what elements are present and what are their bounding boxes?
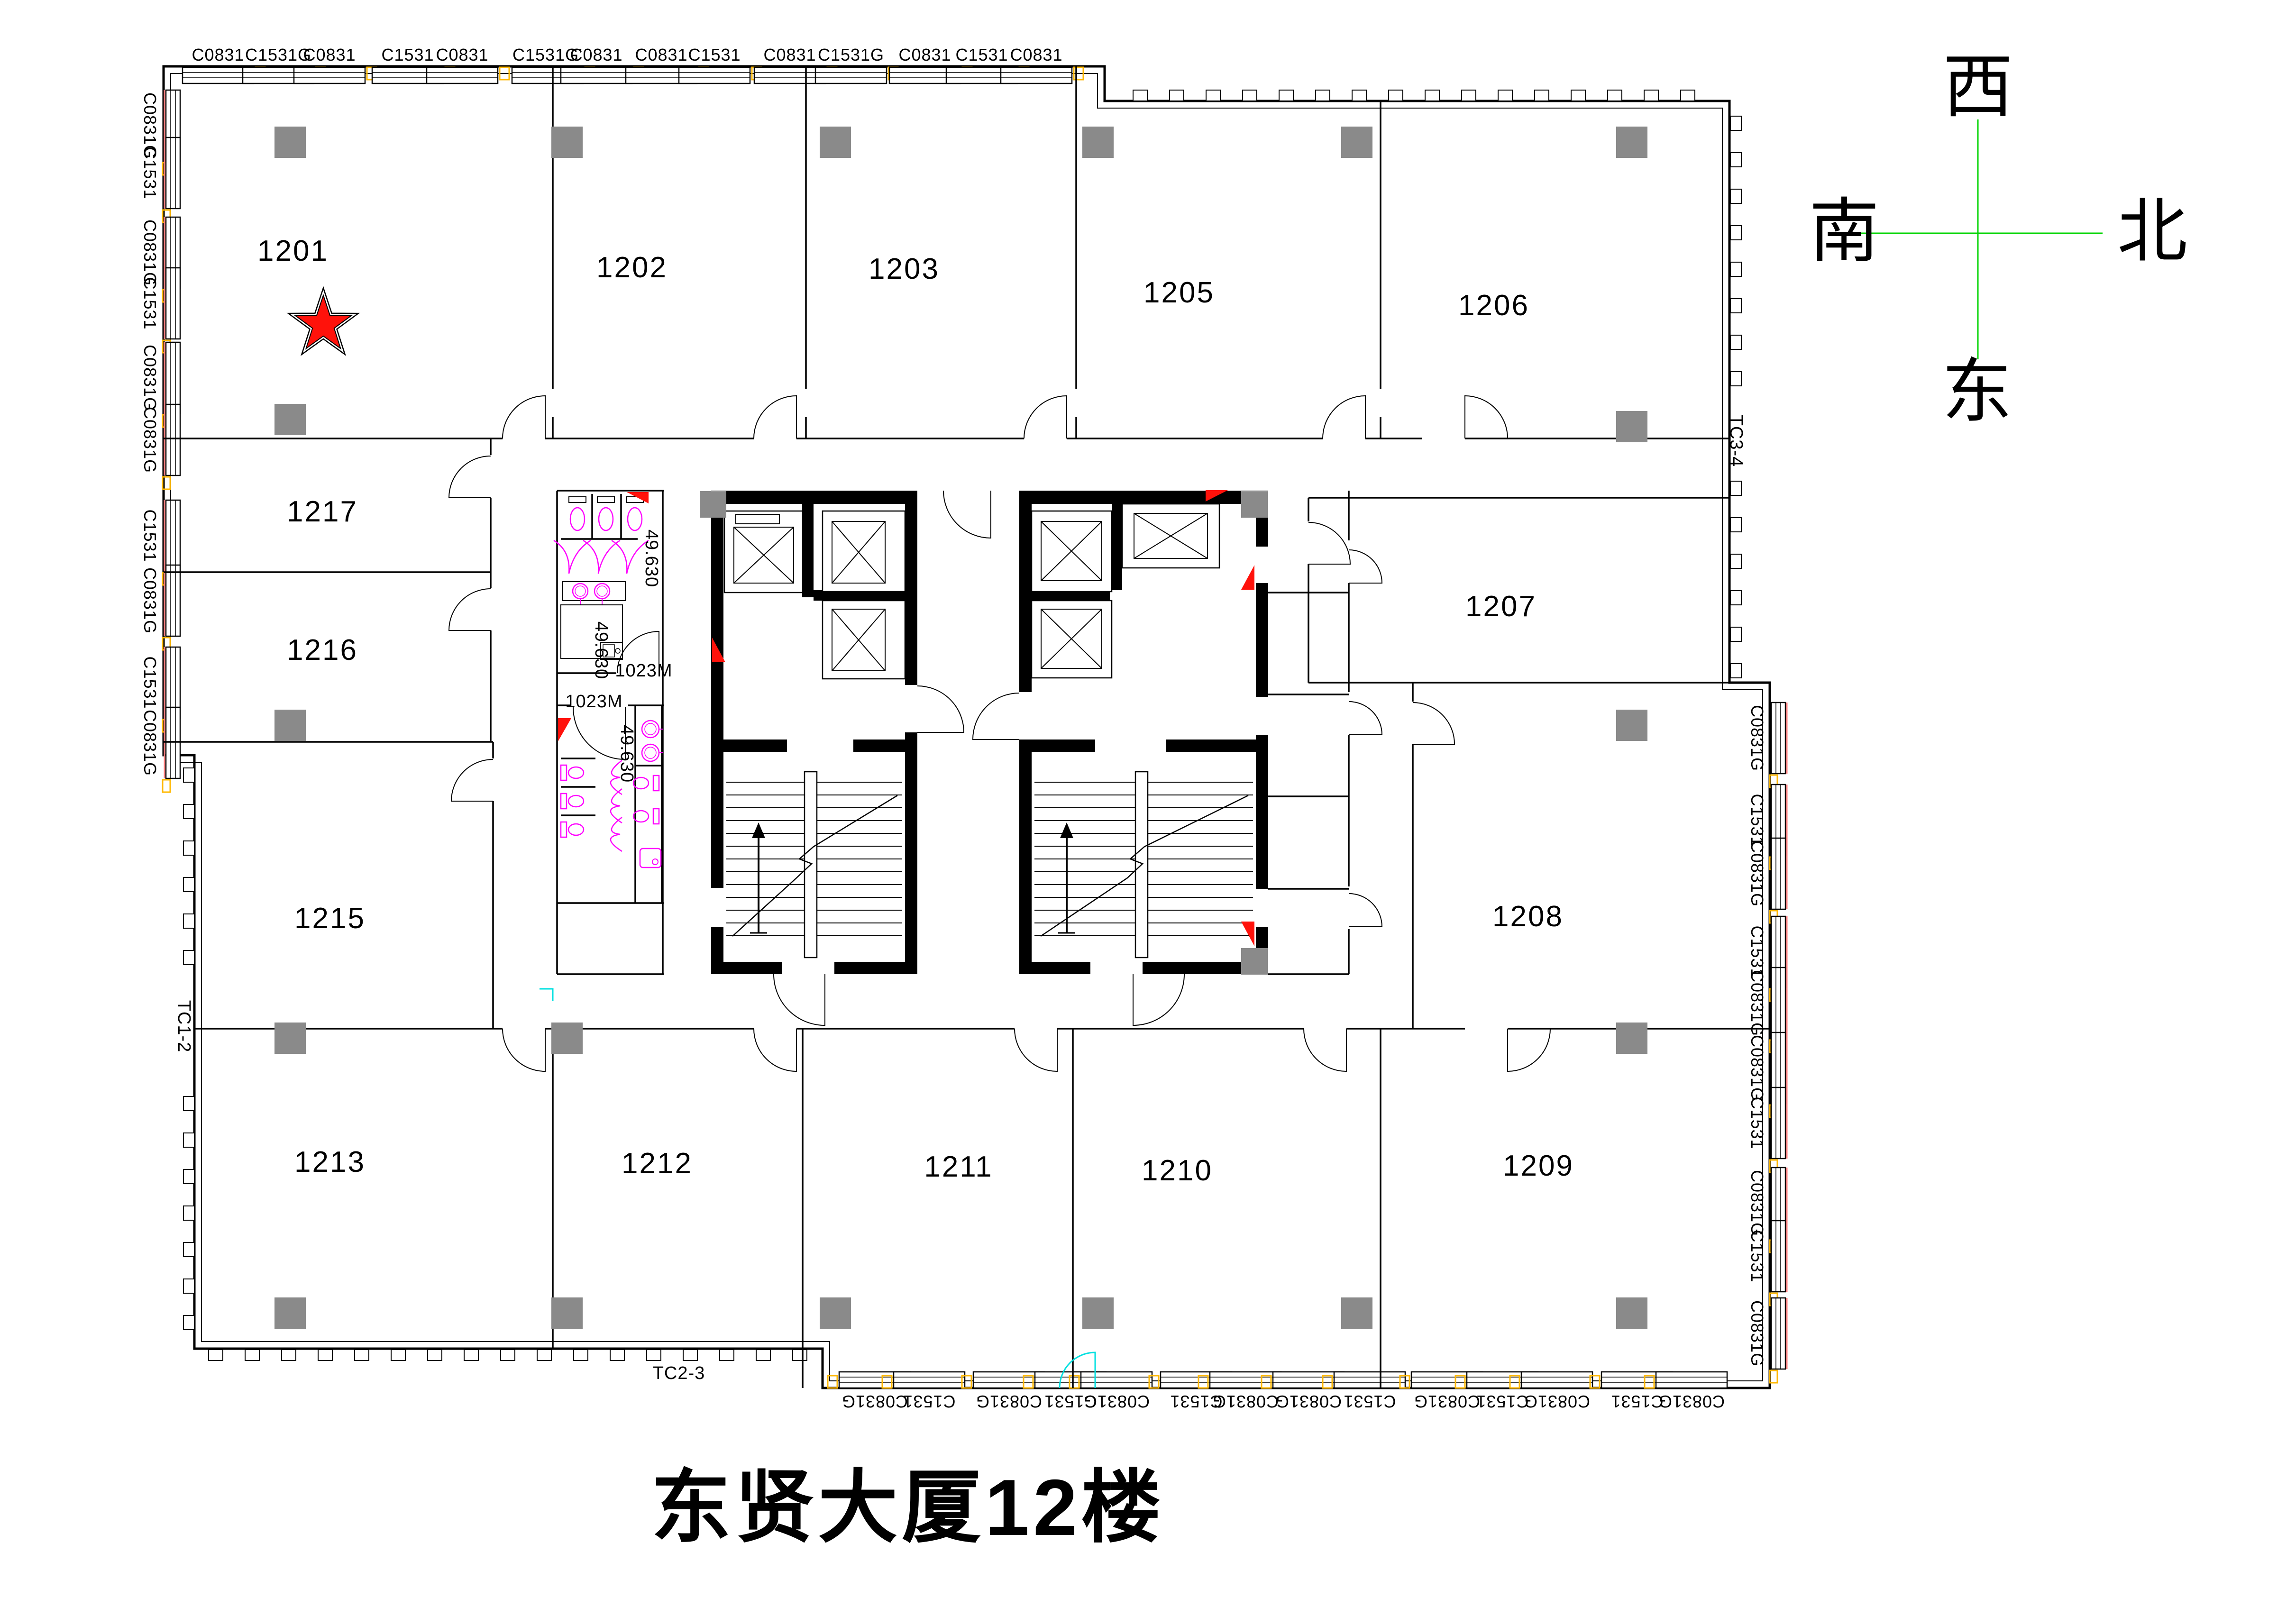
window-icon-bottom bbox=[1323, 1372, 1405, 1388]
window-label-top-4: C0831 bbox=[436, 46, 488, 64]
stair-icon bbox=[726, 772, 902, 958]
structural-columns bbox=[274, 127, 1647, 1329]
column-icon bbox=[820, 1297, 851, 1329]
column-icon bbox=[274, 710, 306, 741]
column-icon bbox=[551, 127, 583, 158]
elevator-icon bbox=[1122, 504, 1219, 568]
room-label-1212: 1212 bbox=[622, 1149, 693, 1178]
column-icon bbox=[1082, 127, 1114, 158]
tc-zone-label-2: TC3-4 bbox=[1727, 415, 1745, 467]
door-swing-icon bbox=[754, 1029, 796, 1071]
column-icon bbox=[1616, 411, 1647, 442]
door-swing-icon bbox=[1323, 396, 1365, 438]
compass-west-label: 西 bbox=[1943, 53, 2013, 123]
window-icon-left bbox=[163, 565, 180, 650]
door-swing-icon bbox=[503, 396, 545, 438]
window-label-bottom-12: C1531 bbox=[1610, 1393, 1663, 1410]
window-icon-right bbox=[1770, 1087, 1787, 1172]
column-icon bbox=[700, 491, 726, 518]
window-label-top-2: C0831 bbox=[303, 46, 356, 64]
tc-zone-label-1: TC2-3 bbox=[653, 1364, 705, 1382]
window-label-left-4: C0831G bbox=[141, 345, 158, 411]
window-label-bottom-0: C0831G bbox=[842, 1393, 908, 1410]
room-label-1205: 1205 bbox=[1143, 278, 1215, 308]
hydrant-icon bbox=[1241, 922, 1254, 946]
column-icon bbox=[820, 127, 851, 158]
window-label-right-6: C1531 bbox=[1748, 1096, 1765, 1149]
window-label-bottom-2: C0831G bbox=[976, 1393, 1042, 1410]
level-annotation-1: 49.630 bbox=[592, 621, 610, 679]
door-swing-icon bbox=[1349, 894, 1382, 927]
room-label-1215: 1215 bbox=[294, 904, 366, 933]
window-label-left-9: C0831G bbox=[141, 710, 158, 776]
door-swing-icon bbox=[1413, 703, 1454, 744]
column-icon bbox=[551, 1297, 583, 1329]
window-label-left-2: C0831G bbox=[141, 219, 158, 286]
room-label-1217: 1217 bbox=[287, 497, 358, 527]
floor-outline bbox=[164, 66, 1770, 1388]
window-icon-right bbox=[1770, 1298, 1787, 1383]
room-label-1208: 1208 bbox=[1492, 902, 1564, 931]
room-label-1202: 1202 bbox=[596, 253, 668, 283]
compass-north-label: 北 bbox=[2117, 197, 2187, 267]
door-swing-icon bbox=[1465, 396, 1508, 438]
red-star-marker bbox=[288, 288, 358, 355]
door-swing-icon bbox=[973, 693, 1019, 740]
window-icon-left bbox=[163, 137, 180, 222]
door-swing-icon bbox=[774, 974, 825, 1025]
window-label-right-4: C0831G bbox=[1748, 970, 1765, 1036]
compass-south-label: 南 bbox=[1809, 197, 1879, 267]
column-icon bbox=[1616, 1023, 1647, 1054]
drawing-title: 东贤大厦12楼 bbox=[651, 1468, 1165, 1547]
window-icon-bottom bbox=[1510, 1372, 1592, 1388]
window-icon-bottom bbox=[1645, 1372, 1727, 1388]
window-label-top-0: C0831 bbox=[192, 46, 244, 64]
elevator-icon bbox=[1032, 601, 1112, 678]
door-swing-icon bbox=[449, 456, 491, 498]
window-label-right-7: C0831G bbox=[1748, 1170, 1765, 1236]
window-label-top-8: C1531 bbox=[688, 46, 741, 64]
hydrant-icon bbox=[558, 718, 571, 741]
hydrant-icon bbox=[1241, 565, 1254, 590]
window-label-bottom-6: C0831G bbox=[1212, 1393, 1279, 1410]
room-label-1201: 1201 bbox=[257, 237, 329, 266]
window-label-right-8: C1531 bbox=[1748, 1230, 1765, 1282]
window-label-top-12: C1531 bbox=[955, 46, 1008, 64]
window-icon-left bbox=[163, 404, 180, 489]
window-icon-left bbox=[163, 268, 180, 353]
level-annotation-0: 49.630 bbox=[642, 530, 660, 587]
door-swing-icon bbox=[451, 759, 493, 801]
window-label-left-6: C1531 bbox=[141, 509, 158, 562]
window-icon-right bbox=[1770, 703, 1787, 787]
window-icon-right bbox=[1770, 1221, 1787, 1306]
elevator-icon bbox=[823, 601, 905, 679]
door-swing-icon bbox=[1304, 1029, 1346, 1071]
column-icon bbox=[274, 404, 306, 435]
compass-east-label: 东 bbox=[1942, 357, 2012, 428]
window-label-right-5: C0831G bbox=[1748, 1035, 1765, 1101]
room-label-1207: 1207 bbox=[1465, 592, 1537, 621]
window-label-bottom-1: C1531 bbox=[903, 1393, 955, 1410]
window-label-top-1: C1531G bbox=[245, 46, 311, 64]
room-label-1213: 1213 bbox=[294, 1148, 366, 1177]
window-label-top-7: C0831 bbox=[635, 46, 687, 64]
column-icon bbox=[1241, 948, 1268, 975]
star-icon bbox=[295, 295, 351, 348]
window-label-left-5: C0831G bbox=[141, 407, 158, 473]
level-annotation-3: 1023M bbox=[615, 662, 672, 680]
window-label-right-2: C0831G bbox=[1748, 840, 1765, 907]
window-label-right-9: C0831G bbox=[1748, 1300, 1765, 1367]
window-icon-top bbox=[679, 67, 761, 83]
room-label-1206: 1206 bbox=[1458, 291, 1529, 320]
column-icon bbox=[274, 127, 306, 158]
level-annotation-4: 1023M bbox=[565, 693, 622, 711]
window-label-bottom-10: C1531 bbox=[1476, 1393, 1528, 1410]
stairwells bbox=[726, 772, 1253, 958]
door-swing-icon bbox=[1508, 1029, 1550, 1071]
window-icon-right bbox=[1770, 838, 1787, 923]
room-label-1211: 1211 bbox=[924, 1152, 993, 1182]
window-label-top-6: C0831 bbox=[570, 46, 622, 64]
column-icon bbox=[1616, 1297, 1647, 1329]
column-icon bbox=[1082, 1297, 1114, 1329]
window-icon-top bbox=[427, 67, 509, 83]
room-label-1216: 1216 bbox=[287, 636, 358, 665]
door-swing-icon bbox=[1024, 396, 1067, 438]
window-label-bottom-13: C0831G bbox=[1658, 1393, 1725, 1410]
door-swing-icon bbox=[1308, 522, 1350, 564]
window-label-bottom-11: C0831G bbox=[1524, 1393, 1590, 1410]
window-label-top-3: C1531 bbox=[381, 46, 434, 64]
column-icon bbox=[1341, 1297, 1372, 1329]
column-icon bbox=[274, 1297, 306, 1329]
tc-zone-label-0: TC1-2 bbox=[175, 1000, 193, 1053]
door-swing-icon bbox=[1015, 1029, 1057, 1071]
window-icon-bottom bbox=[1198, 1372, 1281, 1388]
level-annotation-2: 49.630 bbox=[618, 725, 636, 783]
interior-walls bbox=[164, 66, 1770, 1388]
window-icon-top bbox=[815, 67, 898, 83]
stair-icon bbox=[1034, 772, 1253, 958]
room-label-1209: 1209 bbox=[1503, 1151, 1574, 1181]
window-label-left-8: C1531 bbox=[141, 656, 158, 709]
door-swing-icon bbox=[754, 396, 796, 438]
column-icon bbox=[1241, 491, 1268, 518]
window-label-right-1: C1531 bbox=[1748, 794, 1765, 846]
window-icon-bottom bbox=[1070, 1372, 1152, 1388]
window-label-bottom-8: C1531 bbox=[1343, 1393, 1396, 1410]
room-label-1210: 1210 bbox=[1142, 1156, 1213, 1186]
door-swing-icon bbox=[1133, 974, 1184, 1025]
door-swing-icon bbox=[1349, 702, 1382, 735]
elevator-shafts bbox=[724, 504, 1219, 679]
door-swing-icon bbox=[449, 589, 491, 630]
column-icon bbox=[1616, 127, 1647, 158]
window-label-top-13: C0831 bbox=[1010, 46, 1062, 64]
window-icon-bottom bbox=[962, 1372, 1044, 1388]
door-swing-icon bbox=[1349, 550, 1382, 583]
column-icon bbox=[1341, 127, 1372, 158]
window-label-bottom-7: C0831G bbox=[1275, 1393, 1342, 1410]
window-label-top-10: C1531G bbox=[818, 46, 884, 64]
window-icon-bottom bbox=[882, 1372, 965, 1388]
door-swing-icon bbox=[943, 491, 991, 538]
compass-cross-lines bbox=[1855, 119, 2103, 359]
floor-plan-drawing bbox=[0, 0, 2296, 1607]
window-label-top-9: C0831 bbox=[763, 46, 816, 64]
floor-plan-canvas: 西 南 北 东 东贤大厦12楼 C0831C1531GC0831C1531C08… bbox=[0, 0, 2296, 1607]
room-label-1203: 1203 bbox=[869, 255, 940, 284]
elevator-icon bbox=[1032, 511, 1112, 592]
window-label-left-7: C0831G bbox=[141, 567, 158, 634]
column-icon bbox=[551, 1023, 583, 1054]
column-icon bbox=[1616, 710, 1647, 741]
window-label-bottom-4: C0831G bbox=[1083, 1393, 1150, 1410]
window-label-top-11: C0831 bbox=[898, 46, 951, 64]
window-label-left-1: C1531 bbox=[141, 146, 158, 199]
window-label-right-0: C0831G bbox=[1748, 705, 1765, 771]
window-label-left-3: C1531 bbox=[141, 277, 158, 329]
window-icon-top bbox=[294, 67, 376, 83]
column-icon bbox=[274, 1023, 306, 1054]
door-swing-icon bbox=[917, 686, 964, 732]
door-swing-icon bbox=[503, 1029, 545, 1071]
hydrant-icon bbox=[627, 492, 649, 503]
window-label-bottom-9: C0831G bbox=[1414, 1393, 1480, 1410]
elevator-icon bbox=[823, 511, 905, 592]
window-icon-top bbox=[1001, 67, 1083, 83]
